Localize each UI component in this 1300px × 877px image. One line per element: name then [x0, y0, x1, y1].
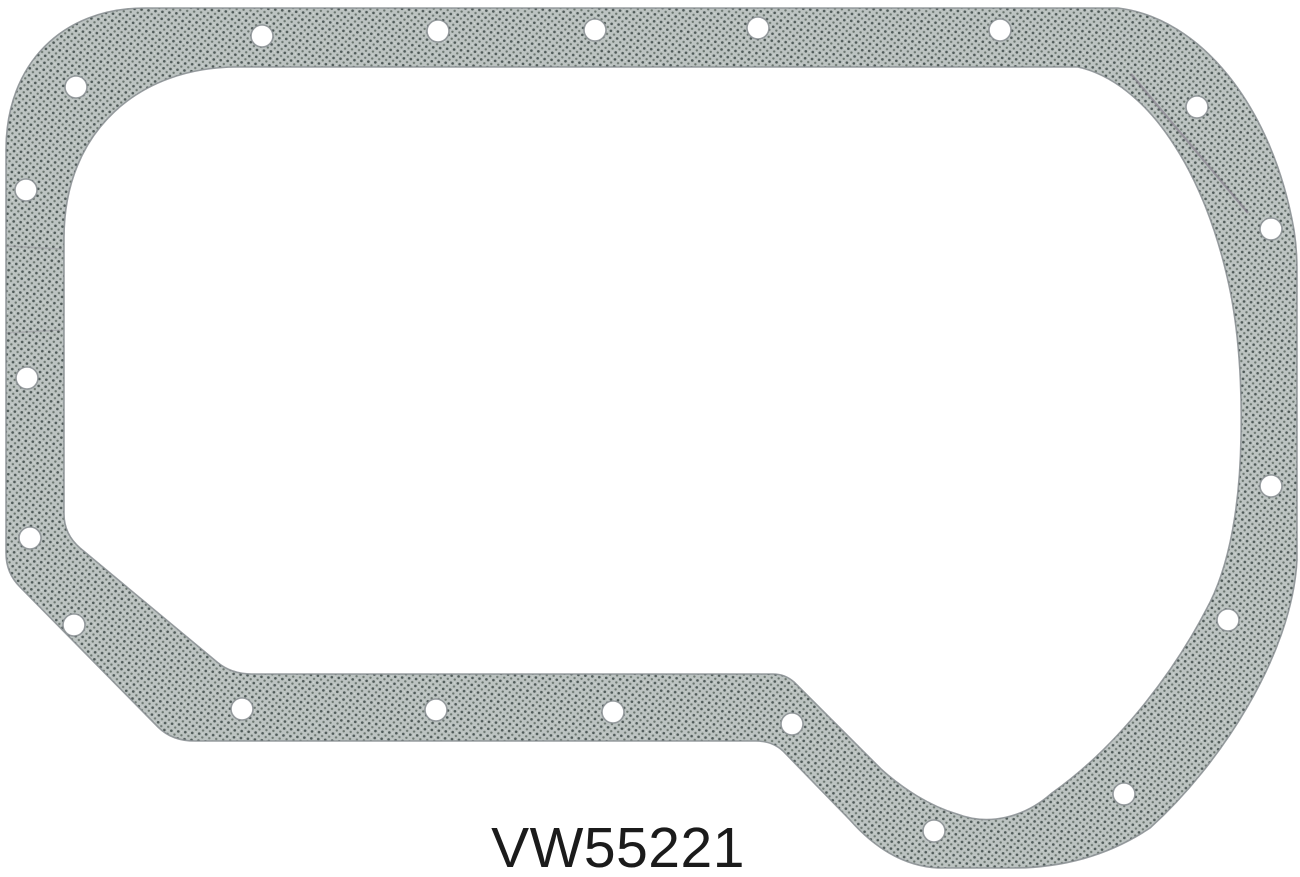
product-image-canvas: VW55221 — [0, 0, 1300, 877]
part-number-label: VW55221 — [491, 820, 745, 877]
gasket-image — [0, 0, 1300, 877]
gasket-body — [6, 8, 1297, 868]
